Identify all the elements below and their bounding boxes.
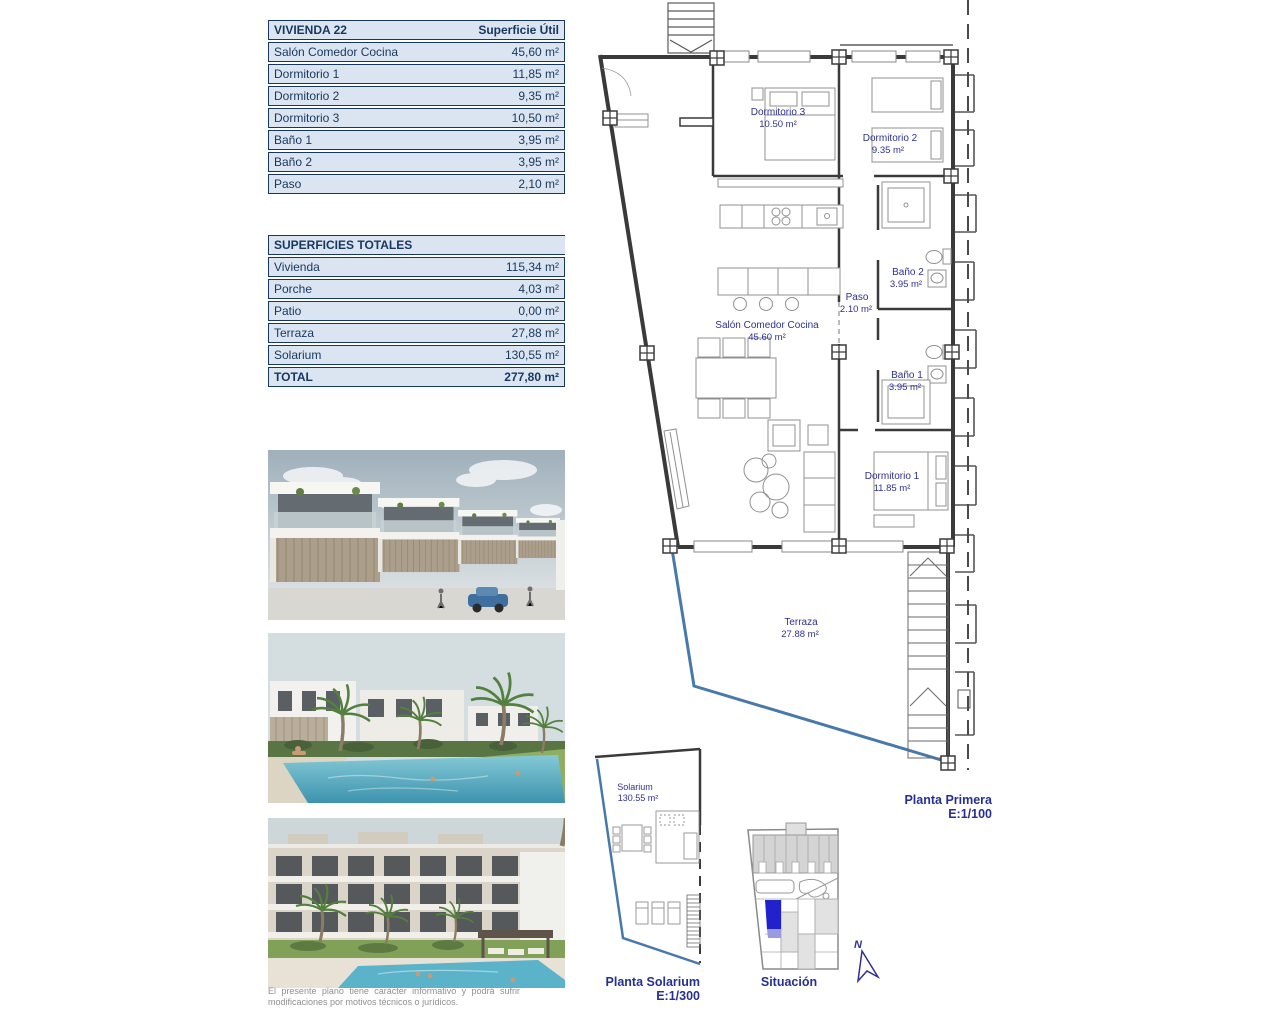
render-photo-apartments (268, 818, 565, 988)
apartment-building (268, 832, 565, 940)
row-label: Baño 1 (268, 130, 457, 150)
table-row: Dormitorio 111,85 m² (268, 64, 565, 84)
north-arrow-pointer (858, 951, 878, 981)
room-area-dormitorio-3: 10.50 m² (759, 119, 797, 130)
total-label: TOTAL (268, 367, 417, 387)
solarium-stair (687, 895, 700, 947)
row-value: 115,34 m² (417, 257, 566, 277)
caption-scale: E:1/300 (594, 989, 700, 1003)
room-area-salon: 45.60 m² (748, 332, 786, 343)
caption-title: Planta Solarium (594, 975, 700, 989)
room-area-paso: 2.10 m² (840, 304, 872, 315)
row-value: 3,95 m² (457, 152, 565, 172)
row-label: Vivienda (268, 257, 417, 277)
disclaimer-text: El presente plano tiene carácter informa… (268, 986, 520, 1008)
row-label: Paso (268, 174, 457, 194)
row-value: 2,10 m² (457, 174, 565, 194)
table-header-row: VIVIENDA 22 Superficie Útil (268, 20, 565, 40)
row-label: Dormitorio 1 (268, 64, 457, 84)
superficie-util-header: Superficie Útil (457, 20, 565, 40)
solarium-label: Solarium (617, 782, 653, 792)
room-area-bano-1: 3.95 m² (889, 382, 921, 393)
highlighted-unit-terrace (767, 929, 781, 938)
table-row: Paso2,10 m² (268, 174, 565, 194)
table-row: Solarium130,55 m² (268, 345, 565, 365)
caption-planta-primera: Planta Primera E:1/100 (872, 793, 992, 821)
room-area-bano-2: 3.95 m² (890, 279, 922, 290)
room-label-terraza: Terraza (784, 617, 818, 628)
room-area-dormitorio-1: 11.85 m² (874, 483, 911, 494)
solarium-plan: Solarium 130.55 m² (592, 745, 710, 970)
table-row: Dormitorio 29,35 m² (268, 86, 565, 106)
table-row: Porche4,03 m² (268, 279, 565, 299)
caption-situacion: Situación (744, 975, 834, 989)
superficies-table: SUPERFICIES TOTALES Vivienda115,34 m² Po… (268, 233, 565, 389)
row-value: 0,00 m² (417, 301, 566, 321)
row-label: Salón Comedor Cocina (268, 42, 457, 62)
highlighted-unit (765, 900, 781, 929)
table-row: Vivienda115,34 m² (268, 257, 565, 277)
street (268, 588, 565, 620)
superficies-title: SUPERFICIES TOTALES (268, 235, 565, 255)
plan-sheet: VIVIENDA 22 Superficie Útil Salón Comedo… (0, 0, 1280, 1024)
site-block-top (786, 823, 806, 835)
terrace-balustrade-line (672, 549, 948, 762)
row-value: 9,35 m² (457, 86, 565, 106)
site-top-row-houses (753, 835, 838, 873)
exterior-stair (908, 552, 948, 758)
table-total-row: TOTAL277,80 m² (268, 367, 565, 387)
room-label-bano-2: Baño 2 (892, 267, 924, 278)
total-value: 277,80 m² (417, 367, 566, 387)
solarium-furniture (613, 811, 699, 924)
room-area-terraza: 27.88 m² (781, 629, 819, 640)
floor-plan: Dormitorio 3 10.50 m² Dormitorio 2 9.35 … (590, 0, 1020, 780)
table-header-row: SUPERFICIES TOTALES (268, 235, 565, 255)
vivienda-table: VIVIENDA 22 Superficie Útil Salón Comedo… (268, 18, 565, 196)
north-arrow: N (848, 933, 888, 988)
render-photo-townhouses (268, 450, 565, 620)
row-label: Baño 2 (268, 152, 457, 172)
room-label-salon: Salón Comedor Cocina (715, 320, 819, 331)
table-row: Baño 13,95 m² (268, 130, 565, 150)
pool (283, 755, 565, 803)
caption-scale: E:1/100 (872, 807, 992, 821)
table-row: Salón Comedor Cocina45,60 m² (268, 42, 565, 62)
room-label-dormitorio-3: Dormitorio 3 (751, 107, 806, 118)
row-label: Patio (268, 301, 417, 321)
row-value: 27,88 m² (417, 323, 566, 343)
row-value: 10,50 m² (457, 108, 565, 128)
vivienda-title: VIVIENDA 22 (268, 20, 457, 40)
row-value: 130,55 m² (417, 345, 566, 365)
row-value: 11,85 m² (457, 64, 565, 84)
stair-top (668, 3, 714, 53)
caption-title: Planta Primera (872, 793, 992, 807)
table-row: Patio0,00 m² (268, 301, 565, 321)
room-area-dormitorio-2: 9.35 m² (872, 145, 904, 156)
solarium-top-wall (595, 749, 700, 757)
table-row: Terraza27,88 m² (268, 323, 565, 343)
row-value: 3,95 m² (457, 130, 565, 150)
caption-planta-solarium: Planta Solarium E:1/300 (594, 975, 700, 1003)
room-label-paso: Paso (846, 292, 869, 303)
row-label: Terraza (268, 323, 417, 343)
row-value: 4,03 m² (417, 279, 566, 299)
room-label-bano-1: Baño 1 (891, 370, 923, 381)
row-label: Dormitorio 3 (268, 108, 457, 128)
row-value: 45,60 m² (457, 42, 565, 62)
situacion-map (736, 822, 840, 970)
solarium-area: 130.55 m² (618, 793, 659, 803)
table-row: Dormitorio 310,50 m² (268, 108, 565, 128)
room-label-dormitorio-2: Dormitorio 2 (863, 133, 918, 144)
row-label: Porche (268, 279, 417, 299)
room-label-dormitorio-1: Dormitorio 1 (865, 471, 920, 482)
render-photo-pool (268, 633, 565, 803)
table-row: Baño 23,95 m² (268, 152, 565, 172)
row-label: Solarium (268, 345, 417, 365)
row-label: Dormitorio 2 (268, 86, 457, 106)
